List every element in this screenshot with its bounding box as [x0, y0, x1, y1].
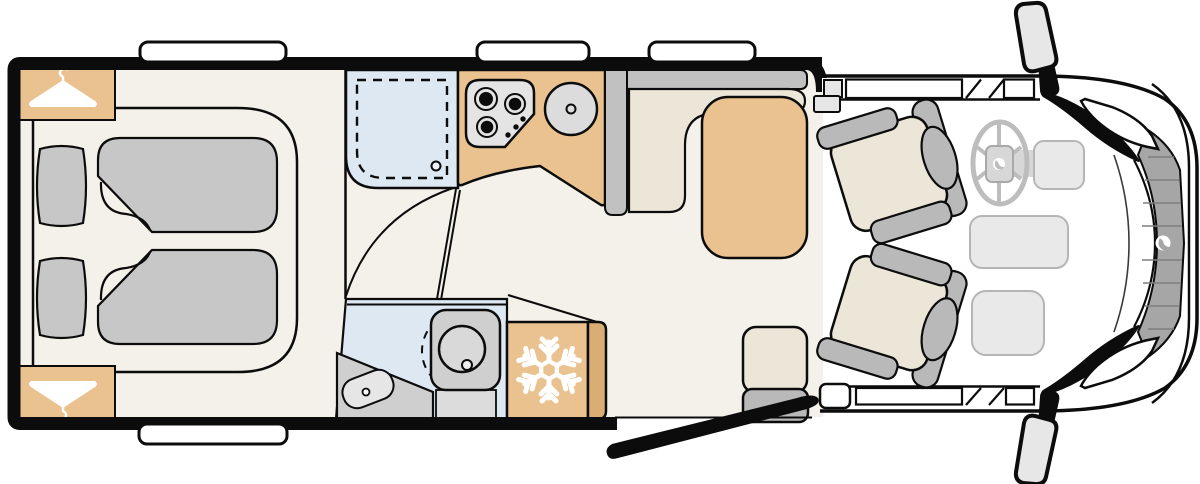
pillow [37, 146, 86, 226]
cab-seat [815, 93, 974, 253]
window-bedroom-bottom [139, 424, 287, 444]
roof-window-bedroom [140, 42, 286, 62]
roof-window-dinette [649, 42, 755, 62]
cab-window-band-top [822, 78, 1040, 100]
entry-step [814, 96, 840, 112]
cowl-line [1114, 155, 1129, 332]
toilet-flush [462, 360, 472, 370]
pillow [37, 258, 86, 338]
fridge-door-edge [588, 322, 606, 419]
grille-logo-icon [1156, 236, 1171, 251]
floorplan-page [0, 0, 1200, 484]
rear-bedroom [12, 68, 297, 420]
toilet-step [436, 390, 496, 419]
floorplan-canvas [0, 0, 1200, 484]
cab [814, 3, 1197, 484]
cab-seat [815, 235, 974, 395]
sink-drain [567, 105, 576, 114]
bench-backrest-top [605, 70, 807, 89]
washbasin-drain [363, 389, 370, 396]
radiator-grille [1138, 130, 1184, 357]
bench-backrest-side [605, 70, 627, 215]
refrigerator [507, 322, 606, 419]
fridge-body [507, 322, 588, 419]
travel-seat-cushion [743, 327, 807, 393]
shower-drain [432, 162, 441, 171]
dinette-table [702, 97, 807, 258]
roof-window-kitchen [477, 42, 589, 62]
